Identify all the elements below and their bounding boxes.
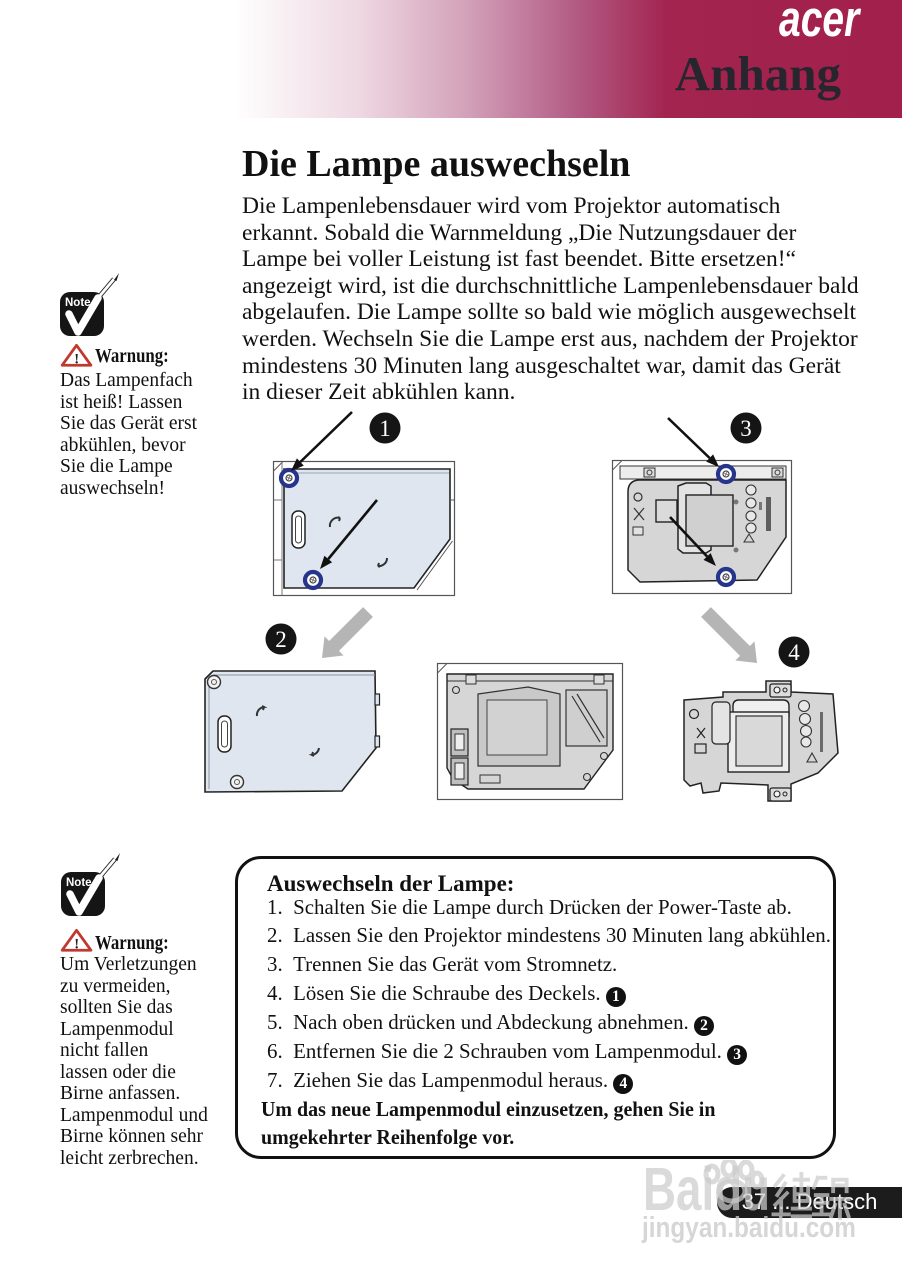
svg-text:1: 1 — [379, 416, 391, 441]
svg-text:2: 2 — [275, 627, 287, 652]
svg-text:Note: Note — [66, 877, 92, 889]
svg-text:4: 4 — [788, 640, 800, 665]
svg-text:!: ! — [74, 351, 79, 367]
svg-text:Note: Note — [65, 297, 91, 309]
svg-text:!: ! — [74, 936, 79, 952]
svg-text:3: 3 — [740, 416, 752, 441]
